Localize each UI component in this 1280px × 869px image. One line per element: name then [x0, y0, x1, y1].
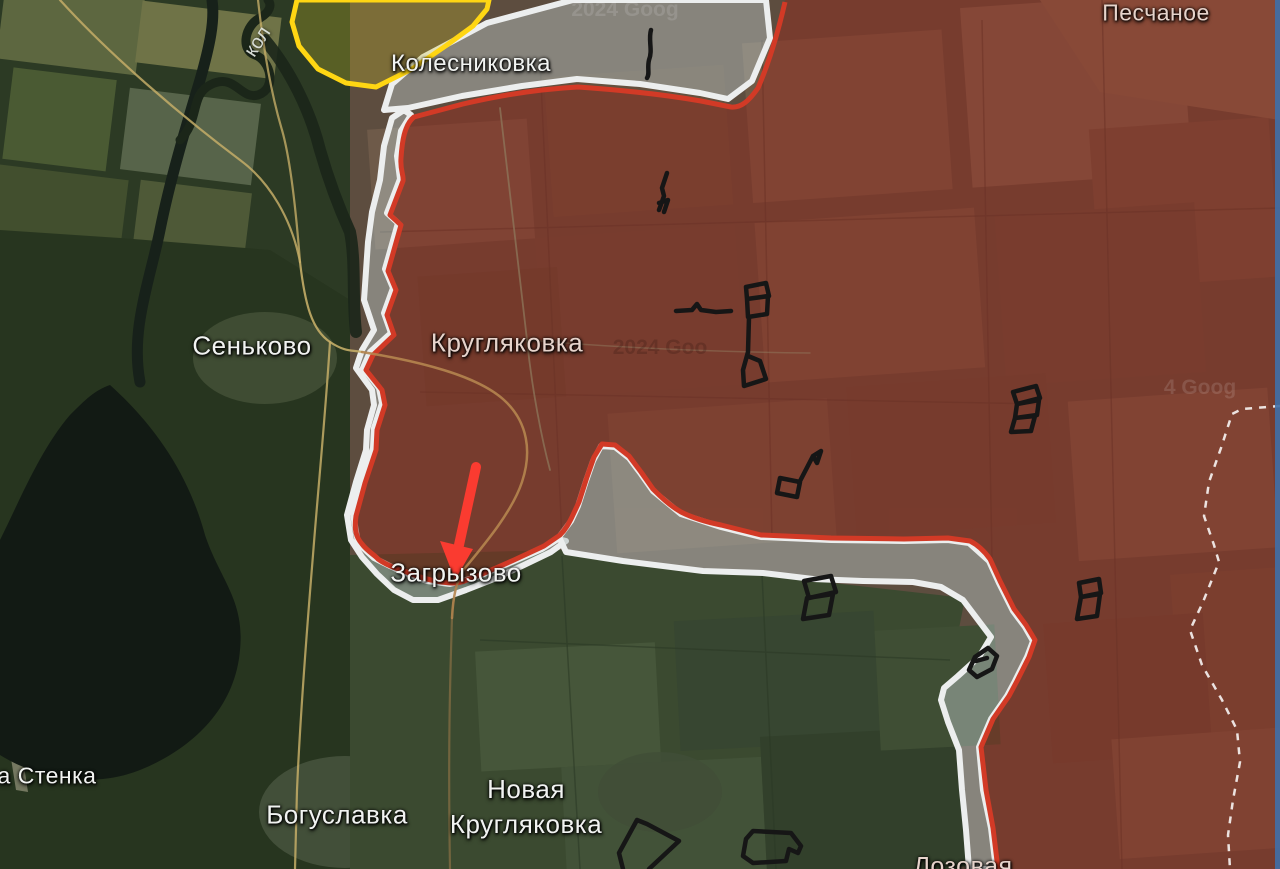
map-canvas[interactable]: кол Колесниковка Песчаное Сеньково Кругл… [0, 0, 1280, 869]
window-edge [1275, 0, 1280, 869]
map-layers [0, 0, 1280, 869]
